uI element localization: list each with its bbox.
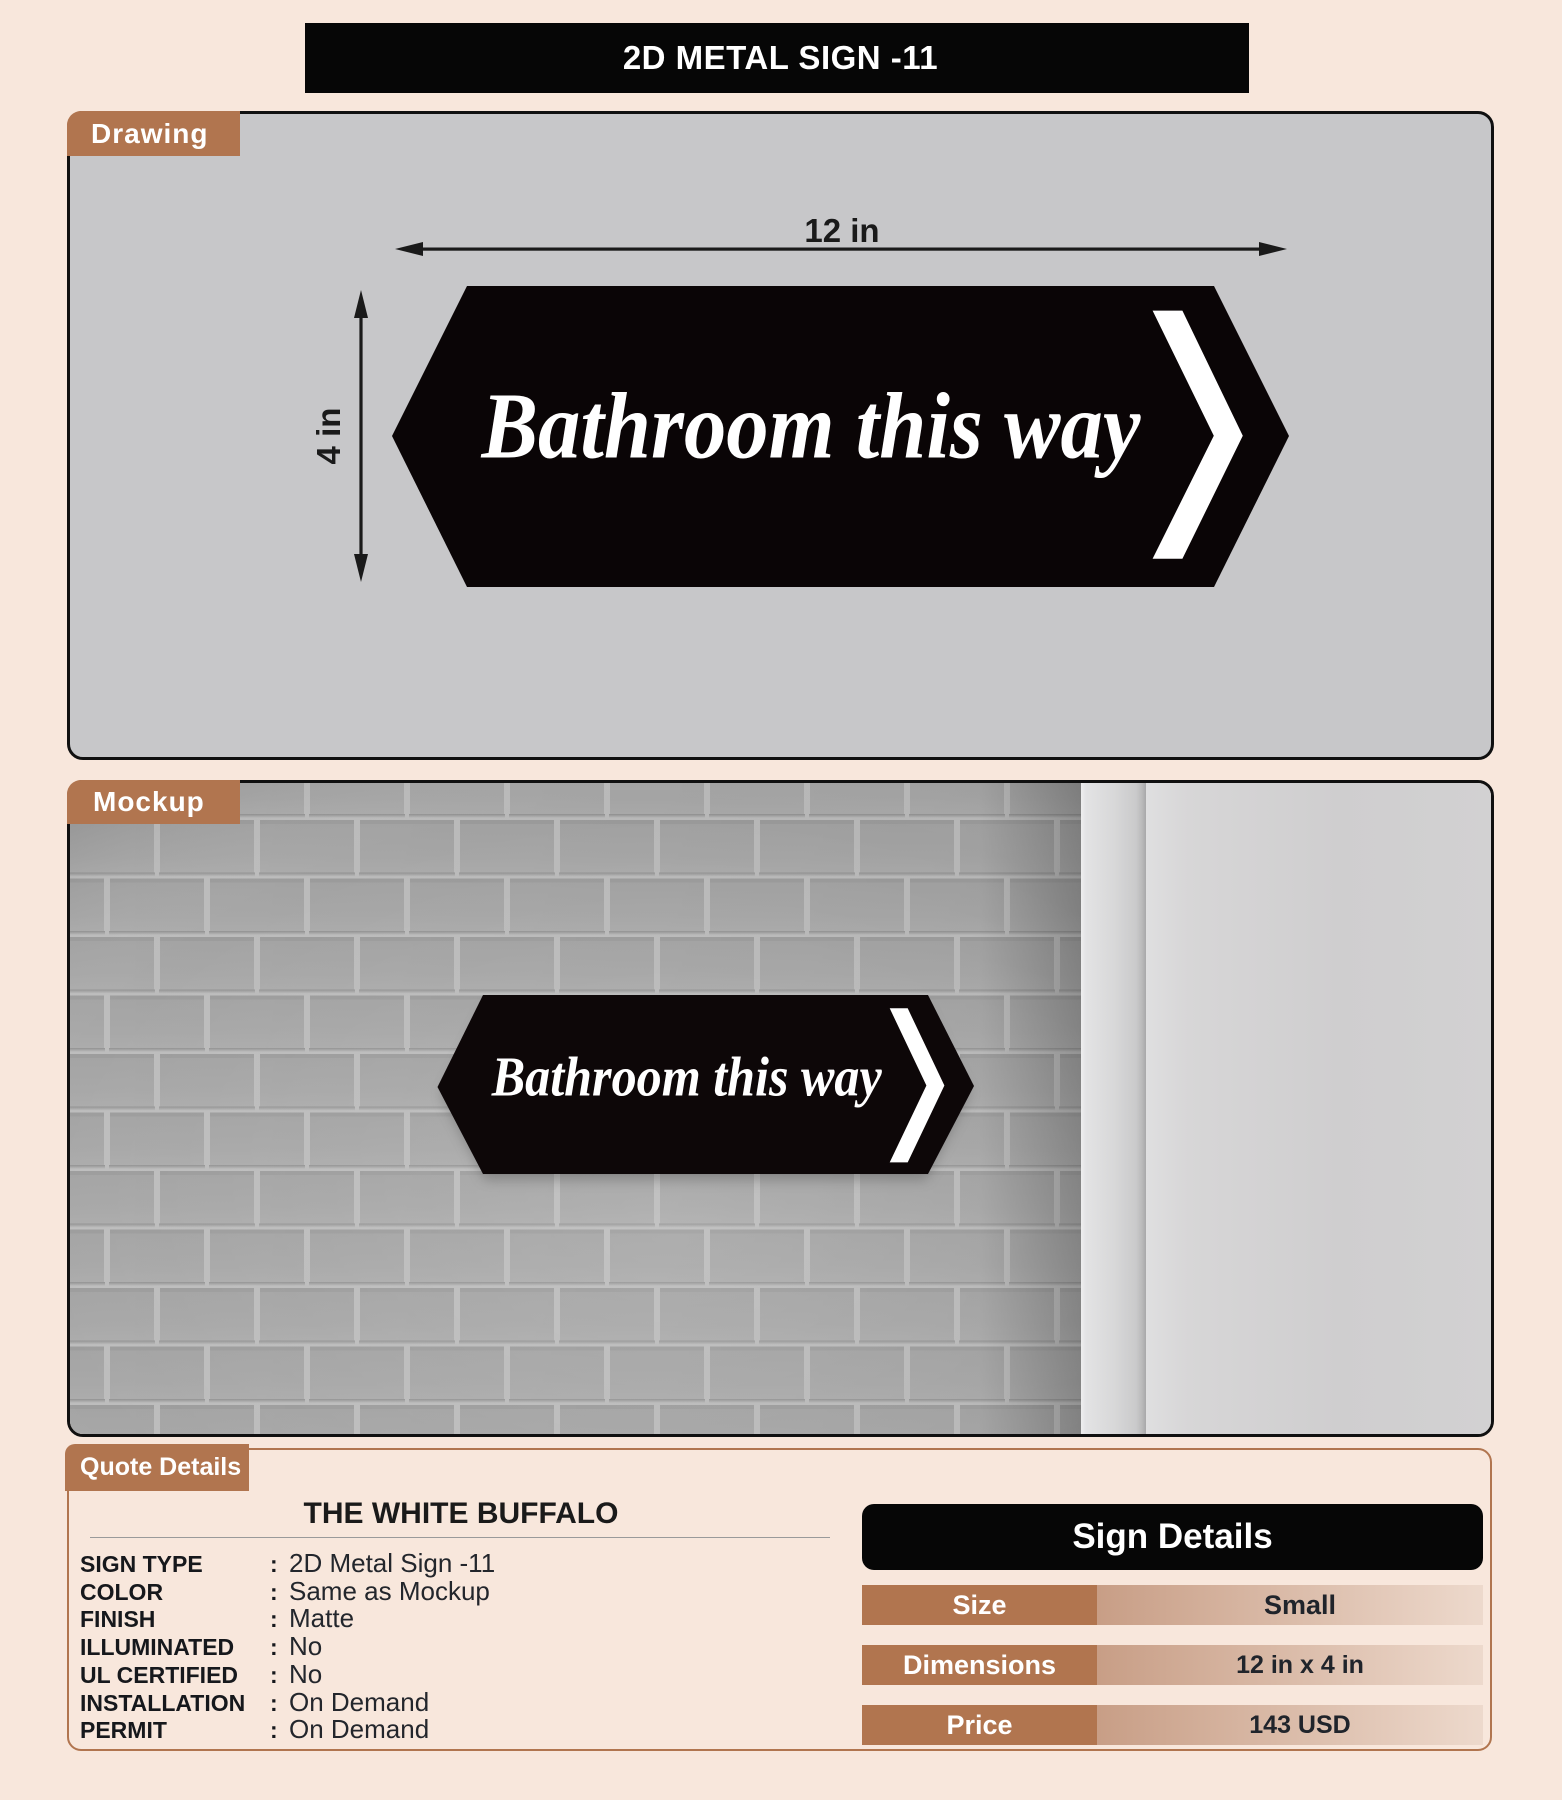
svg-text:Bathroom this way: Bathroom this way <box>481 374 1141 478</box>
svg-text:12 in: 12 in <box>804 212 879 249</box>
svg-text:4 in: 4 in <box>310 408 347 465</box>
svg-text:Bathroom this way: Bathroom this way <box>491 1046 883 1108</box>
